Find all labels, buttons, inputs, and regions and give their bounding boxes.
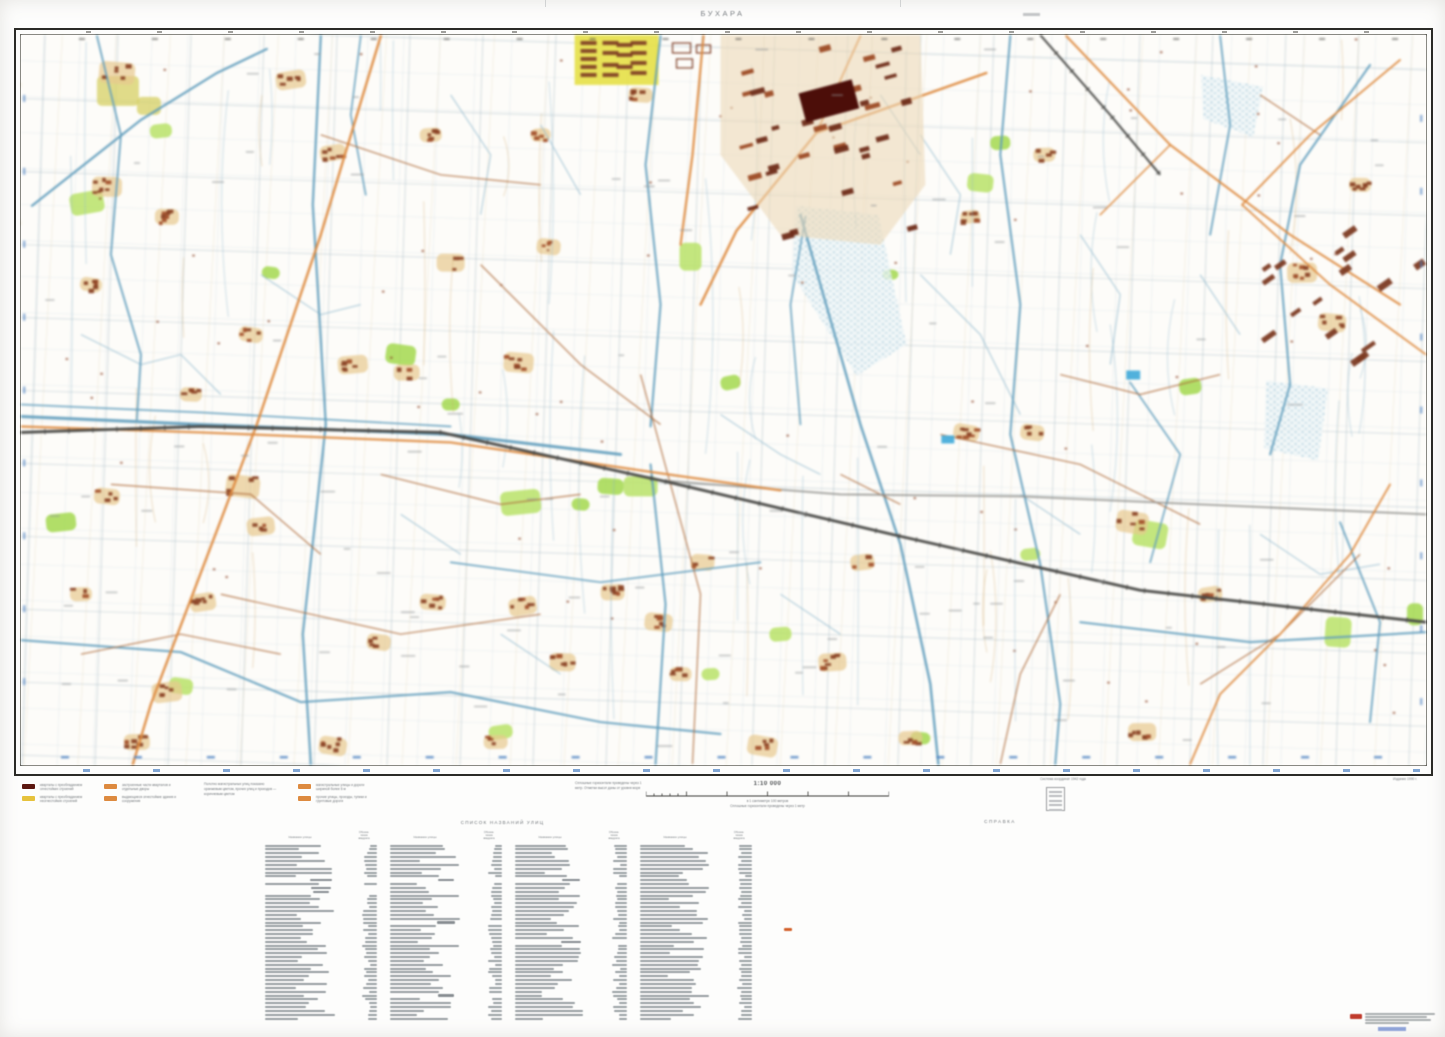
reference-text-columns — [813, 843, 1193, 1026]
legend-swatch — [104, 784, 117, 789]
bottom-grid-number-band — [20, 769, 1427, 772]
street-index-group-header: Название улицыОбозна-чениеквадрата — [640, 831, 752, 841]
legend-note-1: Полотно магистральных улиц показано оран… — [204, 782, 278, 796]
legend-item-label: застроенные части кварталов и отдельные … — [122, 783, 176, 791]
legend-item: прочие улицы, проезды, тупики и грунтовы… — [298, 795, 370, 803]
archive-watermark — [1350, 1013, 1442, 1031]
reference-heading: СПРАВКА — [920, 819, 1080, 824]
map-drawing — [21, 35, 1426, 765]
legend-item-label: выдающиеся огнестойкие здания и сооружен… — [122, 795, 176, 803]
edition-note: Издание 1990 г. — [1393, 777, 1417, 781]
watermark-text — [1365, 1013, 1435, 1025]
street-index-group-header: Название улицыОбозна-чениеквадрата — [265, 831, 377, 841]
legend-item: выдающиеся огнестойкие здания и сооружен… — [104, 795, 176, 803]
grid-column-header: Обозна-чениеквадрата — [726, 831, 752, 841]
reference-text-line — [1075, 855, 1193, 859]
street-index-row — [515, 1017, 627, 1021]
reference-text-line — [813, 1022, 931, 1026]
legend-item: магистральные улицы и дороги шириной бол… — [298, 783, 370, 791]
reference-text-line — [944, 855, 1062, 859]
scale-block: 1:10 000 в 1 сантиметре 100 метров Сплош… — [640, 781, 895, 809]
grid-column-header: Обозна-чениеквадрата — [476, 831, 502, 841]
reference-text-line — [1075, 964, 1193, 968]
reference-text-line — [813, 999, 931, 1003]
street-index-table: Название улицыОбозна-чениеквадратаНазван… — [265, 831, 752, 1021]
legend-column-3: магистральные улицы и дороги шириной бол… — [298, 783, 370, 807]
reference-text-column — [944, 843, 1062, 1026]
topographic-map — [21, 35, 1426, 765]
legend-swatch — [22, 796, 35, 801]
legend-item: застроенные части кварталов и отдельные … — [104, 783, 176, 791]
reference-text-line — [944, 1022, 1062, 1026]
sheet-code-note — [1023, 13, 1040, 16]
reference-text-line — [944, 890, 1062, 894]
legend-item: кварталы с преобладанием неогнестойких с… — [22, 795, 94, 803]
reference-text-line — [944, 999, 1062, 1003]
reference-text-column — [1075, 843, 1193, 1026]
legend-note-2: Сплошные горизонтали проведены через 1 м… — [575, 781, 645, 791]
reference-text-column — [813, 843, 931, 1026]
reference-text-line — [813, 890, 931, 894]
page-title: БУХАРА — [0, 9, 1445, 18]
scale-bar — [646, 789, 889, 798]
watermark-link[interactable] — [1378, 1027, 1406, 1030]
scale-value: 1:10 000 — [640, 781, 895, 787]
cut-mark — [545, 0, 546, 7]
street-index-group-header: Название улицыОбозна-чениеквадрата — [515, 831, 627, 841]
cut-mark — [900, 0, 901, 7]
legend-swatch — [298, 784, 311, 789]
legend-item-label: прочие улицы, проезды, тупики и грунтовы… — [316, 795, 370, 803]
street-index-group: Название улицыОбозна-чениеквадрата — [515, 831, 627, 1021]
street-index-group: Название улицыОбозна-чениеквадрата — [640, 831, 752, 1021]
coordinate-system-note: Система координат 1942 года — [1008, 777, 1118, 781]
street-index-group-header: Название улицыОбозна-чениеквадрата — [390, 831, 502, 841]
street-index-group: Название улицыОбозна-чениеквадрата — [265, 831, 377, 1021]
legend-item-label: магистральные улицы и дороги шириной бол… — [316, 783, 370, 791]
reference-text-line — [1075, 999, 1193, 1003]
map-sheet: БУХАРА кварталы с преобладанием огнестой… — [0, 0, 1445, 1037]
street-index-group: Название улицыОбозна-чениеквадрата — [390, 831, 502, 1021]
watermark-logo-icon — [1350, 1014, 1362, 1019]
reference-text-line — [1075, 1022, 1193, 1026]
contour-note: Сплошные горизонтали проведены через 1 м… — [640, 804, 895, 809]
legend-column-2: застроенные части кварталов и отдельные … — [104, 783, 176, 807]
grid-column-header: Обозна-чениеквадрата — [351, 831, 377, 841]
street-index-heading: СПИСОК НАЗВАНИЙ УЛИЦ — [380, 820, 625, 825]
top-tick-band — [20, 31, 1427, 33]
legend-column-1: кварталы с преобладанием огнестойких стр… — [22, 783, 94, 807]
legend-item-label: кварталы с преобладанием неогнестойких с… — [40, 795, 94, 803]
reference-text-line — [944, 964, 1062, 968]
map-frame — [14, 28, 1433, 776]
name-column-header: Название улицы — [390, 831, 460, 841]
legend-item-label: кварталы с преобладанием огнестойких стр… — [40, 783, 94, 791]
street-index-row — [390, 1017, 502, 1021]
grid-column-header: Обозна-чениеквадрата — [601, 831, 627, 841]
name-column-header: Название улицы — [515, 831, 585, 841]
name-column-header: Название улицы — [640, 831, 710, 841]
legend-swatch — [22, 784, 35, 789]
admin-diagram-stamp — [1046, 787, 1065, 811]
print-registration-mark — [784, 928, 792, 931]
reference-text-line — [813, 855, 931, 859]
name-column-header: Название улицы — [265, 831, 335, 841]
street-index-row — [265, 1017, 377, 1021]
map-inner-frame — [20, 34, 1427, 766]
legend-item: кварталы с преобладанием огнестойких стр… — [22, 783, 94, 791]
street-index-row — [640, 1017, 752, 1021]
legend-swatch — [104, 796, 117, 801]
legend-swatch — [298, 796, 311, 801]
reference-text-line — [813, 964, 931, 968]
